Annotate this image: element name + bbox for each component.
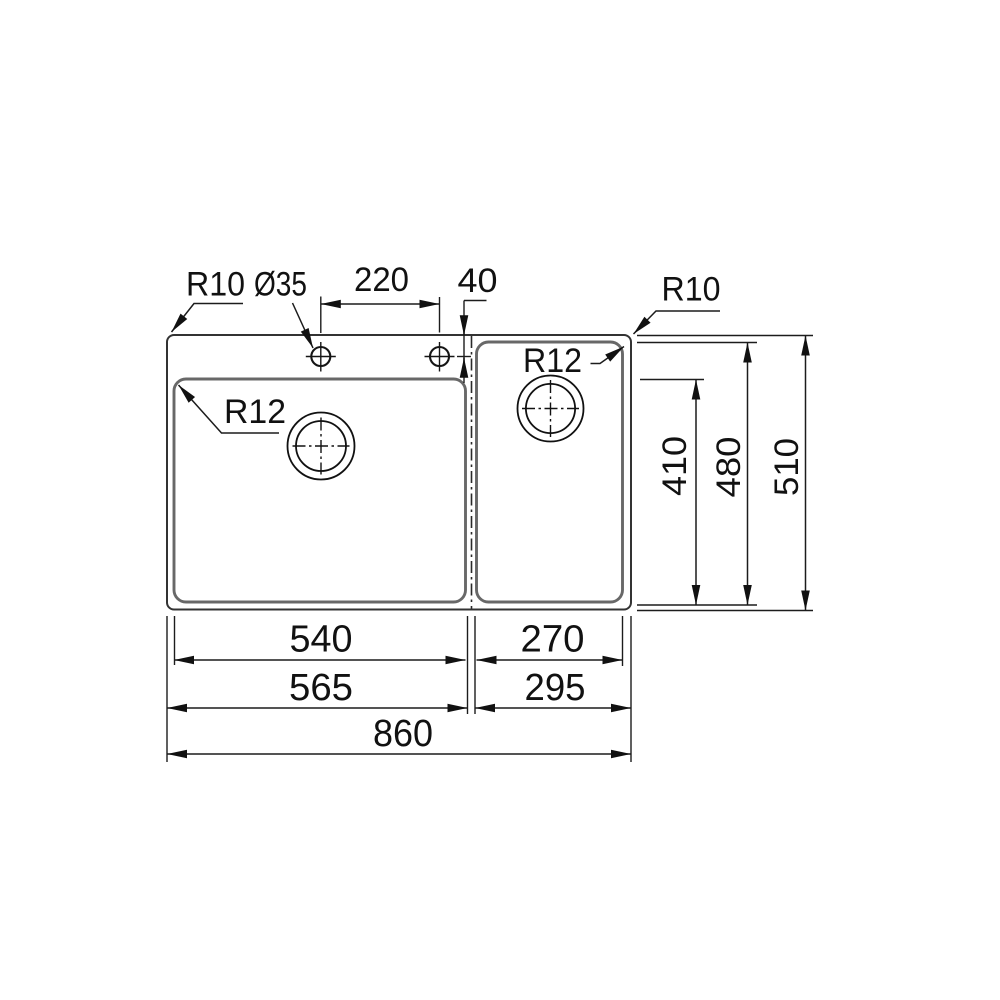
svg-text:R10: R10 bbox=[662, 271, 721, 309]
svg-text:40: 40 bbox=[458, 262, 498, 300]
svg-text:R12: R12 bbox=[523, 342, 582, 380]
svg-text:R10: R10 bbox=[186, 266, 245, 304]
svg-text:Ø35: Ø35 bbox=[254, 266, 307, 304]
svg-text:510: 510 bbox=[768, 438, 806, 496]
svg-text:860: 860 bbox=[373, 713, 433, 755]
svg-text:540: 540 bbox=[290, 619, 353, 661]
svg-text:565: 565 bbox=[289, 667, 353, 709]
svg-text:295: 295 bbox=[525, 667, 586, 709]
svg-text:480: 480 bbox=[710, 437, 748, 498]
svg-text:R12: R12 bbox=[224, 393, 286, 431]
svg-text:220: 220 bbox=[354, 261, 409, 299]
svg-text:270: 270 bbox=[521, 619, 585, 661]
svg-text:410: 410 bbox=[656, 436, 694, 496]
